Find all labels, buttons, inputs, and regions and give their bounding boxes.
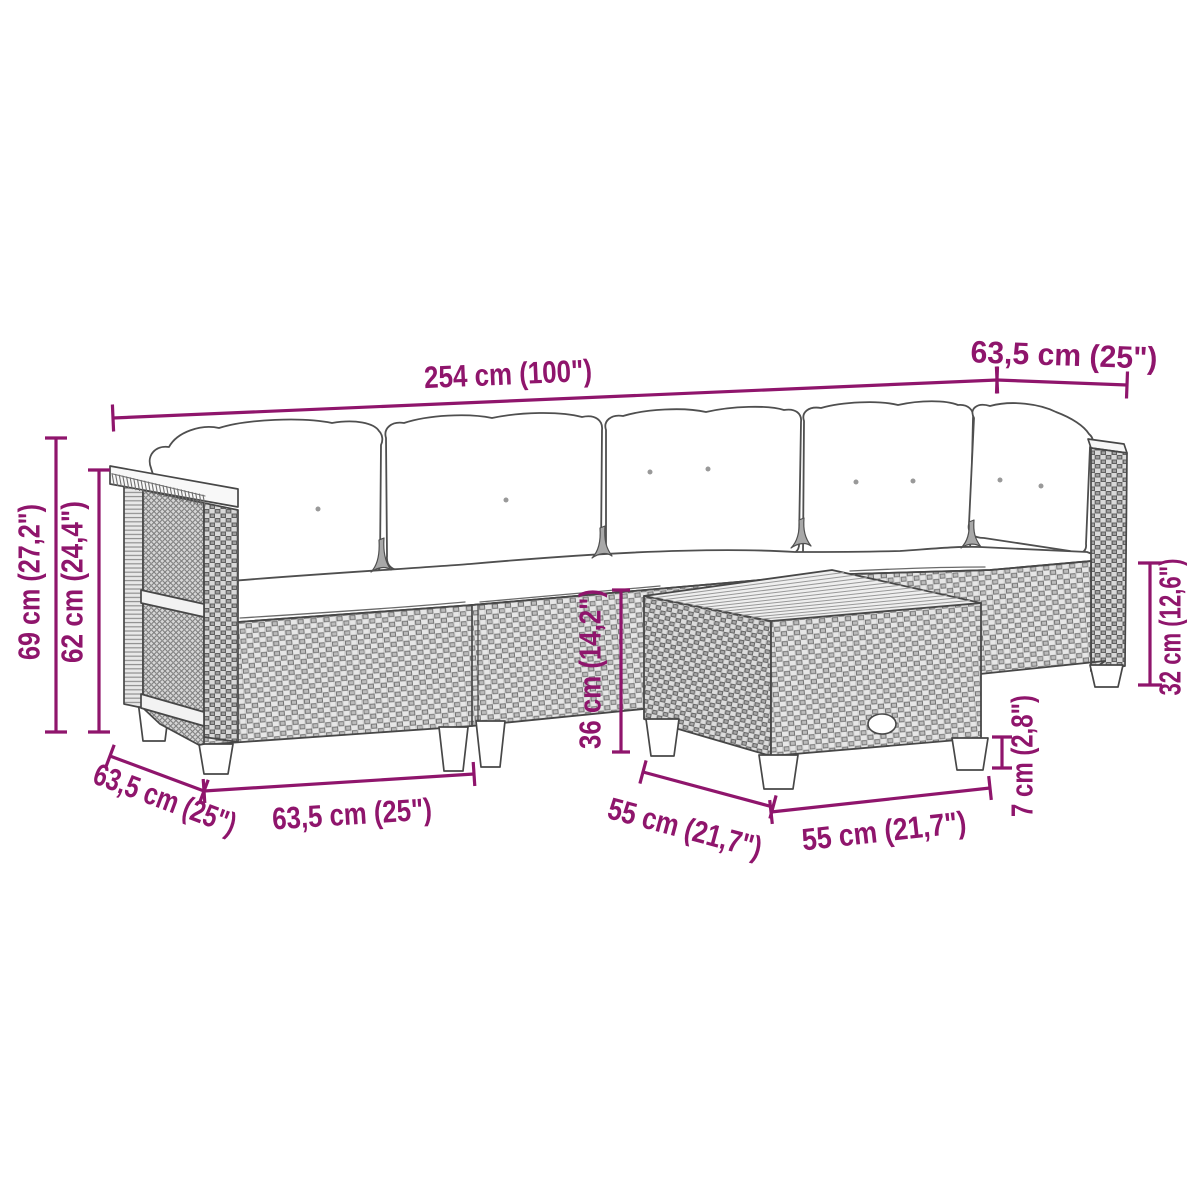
svg-text:69 cm (27,2"): 69 cm (27,2") [12,504,47,660]
svg-text:62 cm (24,4"): 62 cm (24,4") [55,501,90,663]
svg-text:63,5 cm (25"): 63,5 cm (25") [970,334,1158,376]
svg-text:36 cm (14,2"): 36 cm (14,2") [573,589,608,749]
svg-text:32 cm (12,6"): 32 cm (12,6") [1153,559,1188,696]
svg-text:7 cm (2,8"): 7 cm (2,8") [1005,695,1040,817]
svg-text:254 cm (100"): 254 cm (100") [423,353,592,395]
